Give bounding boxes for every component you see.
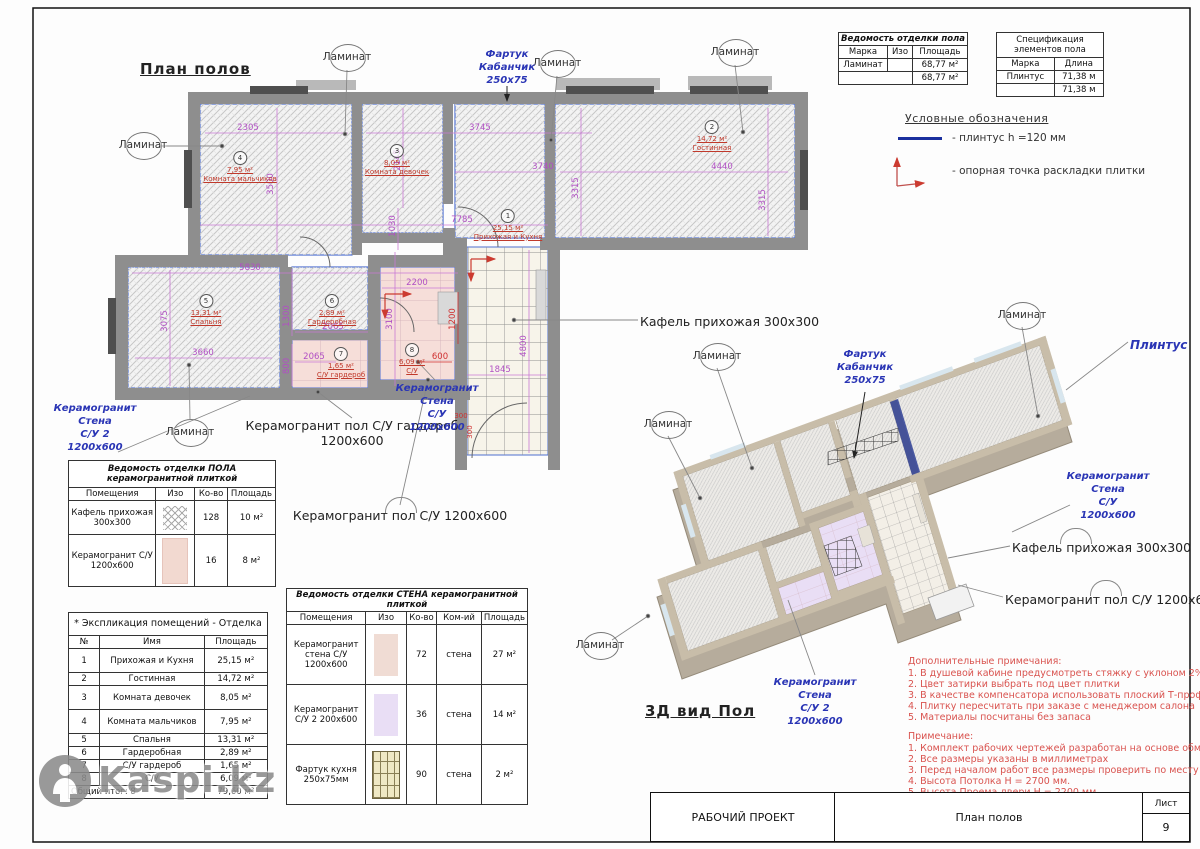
room-area: 25,15 м² (474, 224, 543, 233)
callout-line: Керамогранит (54, 402, 137, 415)
table-cell (888, 59, 913, 72)
table-cell: 90 (406, 745, 436, 805)
balloon-label: Ламинат (998, 309, 1047, 321)
plinth-line-symbol (898, 137, 942, 140)
room-number: 2 (705, 120, 719, 134)
dimension-label: 3075 (160, 310, 170, 332)
table-cell: 16 (195, 535, 228, 587)
room-label-1: 125,15 м²Прихожая и Кухня (474, 209, 543, 241)
callout-line: Фартук (837, 348, 893, 361)
table-cell: 4 (69, 710, 100, 734)
room-name: Гардеробная (308, 318, 356, 327)
room-area: 13,31 м² (190, 309, 221, 318)
dimension-label: 2305 (237, 123, 259, 133)
legend-title: Условные обозначения (905, 112, 1048, 125)
room-name: Прихожая и Кухня (474, 233, 543, 242)
dimension-label: 3740 (532, 162, 554, 172)
column-header: Площадь (913, 46, 968, 59)
table-cell: 71,38 м (1054, 71, 1103, 84)
callout-line: Кабанчик (837, 361, 893, 374)
callout-line: Керамогранит (396, 382, 479, 395)
room-area: 7,95 м² (203, 166, 276, 175)
table-cell: Кафель прихожая 300х300 (69, 501, 156, 535)
room-number: 8 (405, 343, 419, 357)
titleblock-project: РАБОЧИЙ ПРОЕКТ (650, 792, 836, 842)
floor-elements-table: Спецификация элементов пола Марка Длина … (996, 32, 1104, 97)
column-header: Имя (100, 636, 204, 649)
swatch-cell (366, 745, 407, 805)
watermark-logo (36, 752, 94, 810)
table-cell: Спальня (100, 734, 204, 747)
note-line: 2. Все размеры указаны в миллиметрах (908, 754, 1108, 765)
dimension-label: 4800 (519, 335, 529, 357)
table-total: 71,38 м (1054, 84, 1103, 97)
dimension-label: 3100 (385, 308, 395, 330)
table-cell: Плинтус (997, 71, 1055, 84)
table-title: Ведомость отделки ПОЛА керамогранитной п… (69, 461, 276, 488)
table-cell: 3 (69, 686, 100, 710)
wall-su2-callout-3d: КерамогранитСтенаС/У 21200х600 (774, 676, 857, 728)
table-cell: 128 (195, 501, 228, 535)
column-header: Марка (839, 46, 888, 59)
callout-line: 1200х600 (774, 715, 857, 728)
titleblock-sheet-number: 9 (1142, 813, 1190, 842)
table-cell: 14 м² (481, 685, 527, 745)
column-header: Марка (997, 58, 1055, 71)
room-number: 5 (199, 294, 213, 308)
table-title: Ведомость отделки пола (839, 33, 968, 46)
balloon-label: Ламинат (166, 426, 215, 438)
note-line: 3. Перед началом работ все размеры прове… (908, 765, 1199, 776)
callout-line: Керамогранит (1067, 470, 1150, 483)
dimension-label: 3660 (192, 348, 214, 358)
su-floor-callout-3d: Керамогранит пол С/У 1200х600 (1005, 592, 1200, 607)
room-label-2: 214,72 м²Гостинная (693, 120, 732, 152)
room-area: 6,09 м² (399, 358, 425, 367)
dimension-label: 1030 (388, 215, 398, 237)
table-title: * Экспликация помещений - Отделка (69, 613, 268, 636)
wall-su2-callout-2d: КерамогранитСтенаС/У 21200х600 (54, 402, 137, 454)
table-cell (997, 84, 1055, 97)
plan-title: План полов (140, 60, 251, 78)
note-line: 5. Материалы посчитаны без запаса (908, 712, 1091, 723)
room-area: 2,89 м² (308, 309, 356, 318)
dimension-label: 7785 (451, 215, 473, 225)
brick-tile-swatch (372, 751, 400, 799)
column-header: Ко-во (195, 488, 228, 501)
dimension-label: 4440 (711, 162, 733, 172)
room-label-3: 38,05 м²Комната девочек (365, 144, 429, 176)
wall-su-callout-3d: КерамогранитСтенаС/У1200х600 (1067, 470, 1150, 522)
table-cell: 68,77 м² (913, 59, 968, 72)
column-header: Помещения (69, 488, 156, 501)
callout-line: 250х75 (479, 74, 535, 87)
callout-line: С/У (396, 408, 479, 421)
room-name: Комната мальчиков (203, 175, 276, 184)
callout-line: 1200х600 (54, 441, 137, 454)
room-name: Спальня (190, 318, 221, 327)
swatch-cell (156, 535, 195, 587)
table-cell: 7,95 м² (204, 710, 267, 734)
room-label-5: 513,31 м²Спальня (190, 294, 221, 326)
apron-callout-2d: ФартукКабанчик250х75 (479, 48, 535, 87)
table-cell: 2 м² (481, 745, 527, 805)
balloon-label: Ламинат (711, 46, 760, 58)
swatch-cell (366, 625, 407, 685)
table-cell: Фартук кухня 250х75мм (287, 745, 366, 805)
balloon-label: Ламинат (323, 51, 372, 63)
column-header: № (69, 636, 100, 649)
callout-line: Керамогранит (774, 676, 857, 689)
dimension-label: 1200 (448, 308, 458, 330)
room-label-4: 47,95 м²Комната мальчиков (203, 151, 276, 183)
view3d-title: 3Д вид Пол (645, 702, 755, 720)
column-header: Длина (1054, 58, 1103, 71)
dimension-label: 5830 (239, 263, 261, 273)
table-cell: 72 (406, 625, 436, 685)
callout-line: 1200х600 (245, 433, 458, 448)
table-cell: Керамогранит С/У 1200х600 (69, 535, 156, 587)
plinth-callout-3d: Плинтус (1130, 338, 1187, 352)
table-cell: 10 м² (227, 501, 275, 535)
table-cell: 25,15 м² (204, 649, 267, 673)
balloon-label: Ламинат (576, 639, 625, 651)
room-label-8: 86,09 м²С/У (399, 343, 425, 375)
callout-line: 250х75 (837, 374, 893, 387)
room-number: 1 (501, 209, 515, 223)
dimension-label: 800 (282, 358, 292, 374)
table-cell: Ламинат (839, 59, 888, 72)
note-line: 3. В качестве компенсатора использовать … (908, 690, 1200, 701)
room-number: 7 (334, 347, 348, 361)
table-cell: 8 м² (227, 535, 275, 587)
titleblock-sheet-name: План полов (834, 792, 1144, 842)
swatch-cell (366, 685, 407, 745)
table-cell: Прихожая и Кухня (100, 649, 204, 673)
table-cell: 27 м² (481, 625, 527, 685)
note-line: 4. Плитку пересчитать при заказе с менед… (908, 701, 1195, 712)
hall-tile-callout-2d: Кафель прихожая 300х300 (640, 314, 819, 329)
table-cell: Гардеробная (100, 747, 204, 760)
callout-line: Стена (54, 415, 137, 428)
column-header: Площадь (227, 488, 275, 501)
swatch-cell (156, 501, 195, 535)
wall-ceramic-table: Ведомость отделки СТЕНА керамогранитной … (286, 588, 528, 805)
dimension-label: 3315 (571, 177, 581, 199)
table-cell: 1 (69, 649, 100, 673)
note-line: 1. Комплект рабочих чертежей разработан … (908, 743, 1200, 754)
note-line: 4. Высота Потолка Н = 2700 мм. (908, 776, 1070, 787)
table-cell: стена (437, 685, 482, 745)
table-total: 68,77 м² (913, 72, 968, 85)
column-header: Изо (156, 488, 195, 501)
pink-swatch (162, 538, 188, 584)
callout-line: Стена (1067, 483, 1150, 496)
callout-line: Фартук (479, 48, 535, 61)
balloon-label: Ламинат (644, 418, 693, 430)
notes-additional-title: Дополнительные примечания: (908, 656, 1062, 667)
room-area: 14,72 м² (693, 135, 732, 144)
room-number: 3 (390, 144, 404, 158)
legend-item-tile-origin: - опорная точка раскладки плитки (952, 165, 1145, 177)
table-cell: 8,05 м² (204, 686, 267, 710)
room-area: 8,05 м² (365, 159, 429, 168)
table-cell: Гостинная (100, 673, 204, 686)
table-cell: 13,31 м² (204, 734, 267, 747)
callout-line: 1200х600 (1067, 509, 1150, 522)
room-number: 6 (325, 294, 339, 308)
table-title: Спецификация элементов пола (997, 33, 1104, 58)
dimension-label: 3745 (469, 123, 491, 133)
table-cell: стена (437, 745, 482, 805)
dimension-label: 2200 (406, 278, 428, 288)
table-cell: Комната мальчиков (100, 710, 204, 734)
table-cell: 2 (69, 673, 100, 686)
callout-line: Стена (396, 395, 479, 408)
legend-symbols (897, 137, 942, 186)
room-label-7: 71,65 м²С/У гардероб (317, 347, 365, 379)
table-cell: стена (437, 625, 482, 685)
room-name: Гостинная (693, 144, 732, 153)
legend-item-plinth: - плинтус h =120 мм (952, 132, 1066, 144)
wall-su-callout-2d: КерамогранитСтенаС/У1200х600 (396, 382, 479, 434)
column-header: Площадь (204, 636, 267, 649)
dimension-label: 1845 (489, 365, 511, 375)
floor-plan-3d-view (624, 332, 1109, 701)
room-label-6: 62,89 м²Гардеробная (308, 294, 356, 326)
note-line: 1. В душевой кабине предусмотреть стяжку… (908, 668, 1200, 679)
table-cell: 5 (69, 734, 100, 747)
table-cell: 2,89 м² (204, 747, 267, 760)
notes-main-title: Примечание: (908, 731, 973, 742)
table-cell: Керамогранит стена С/У 1200х600 (287, 625, 366, 685)
column-header: Площадь (481, 612, 527, 625)
lavender-swatch (374, 694, 398, 736)
floor-finish-table: Ведомость отделки пола Марка Изо Площадь… (838, 32, 968, 85)
watermark-text: Kaspi.kz (98, 760, 276, 801)
callout-line: С/У 2 (774, 702, 857, 715)
pink-swatch (374, 634, 398, 676)
callout-line: С/У 2 (54, 428, 137, 441)
table-cell: Комната девочек (100, 686, 204, 710)
column-header: Помещения (287, 612, 366, 625)
crosshatch-swatch (163, 506, 187, 530)
dimension-label: 3315 (758, 189, 768, 211)
table-cell: 36 (406, 685, 436, 745)
balloon-label: Ламинат (693, 350, 742, 362)
column-header: Ком-ий (437, 612, 482, 625)
room-name: Комната девочек (365, 168, 429, 177)
drawing-sheet: 2305 3745 2145 3500 1030 3740 3315 4440 … (0, 0, 1200, 849)
callout-line: 1200х600 (396, 421, 479, 434)
callout-line: Стена (774, 689, 857, 702)
table-cell (839, 72, 913, 85)
room-area: 1,65 м² (317, 362, 365, 371)
titleblock-sheet-label: Лист (1142, 792, 1190, 815)
dimension-label: 1300 (282, 305, 292, 327)
balloon-label: Ламинат (533, 57, 582, 69)
hall-tile-callout-3d: Кафель прихожая 300х300 (1012, 540, 1191, 555)
su-floor-callout-2d: Керамогранит пол С/У 1200х600 (293, 508, 507, 523)
floor-ceramic-table: Ведомость отделки ПОЛА керамогранитной п… (68, 460, 276, 587)
room-name: С/У гардероб (317, 371, 365, 380)
apron-callout-3d: ФартукКабанчик250х75 (837, 348, 893, 387)
dimension-label: 600 (432, 352, 448, 362)
table-cell: Керамогранит С/У 2 200х600 (287, 685, 366, 745)
balloon-label: Ламинат (119, 139, 168, 151)
table-title: Ведомость отделки СТЕНА керамогранитной … (287, 589, 528, 612)
tile-origin-symbol (897, 158, 924, 186)
callout-line: С/У (1067, 496, 1150, 509)
room-name: С/У (399, 367, 425, 376)
column-header: Изо (888, 46, 913, 59)
column-header: Ко-во (406, 612, 436, 625)
column-header: Изо (366, 612, 407, 625)
note-line: 2. Цвет затирки выбрать под цвет плитки (908, 679, 1120, 690)
table-cell: 14,72 м² (204, 673, 267, 686)
room-number: 4 (233, 151, 247, 165)
callout-line: Кабанчик (479, 61, 535, 74)
